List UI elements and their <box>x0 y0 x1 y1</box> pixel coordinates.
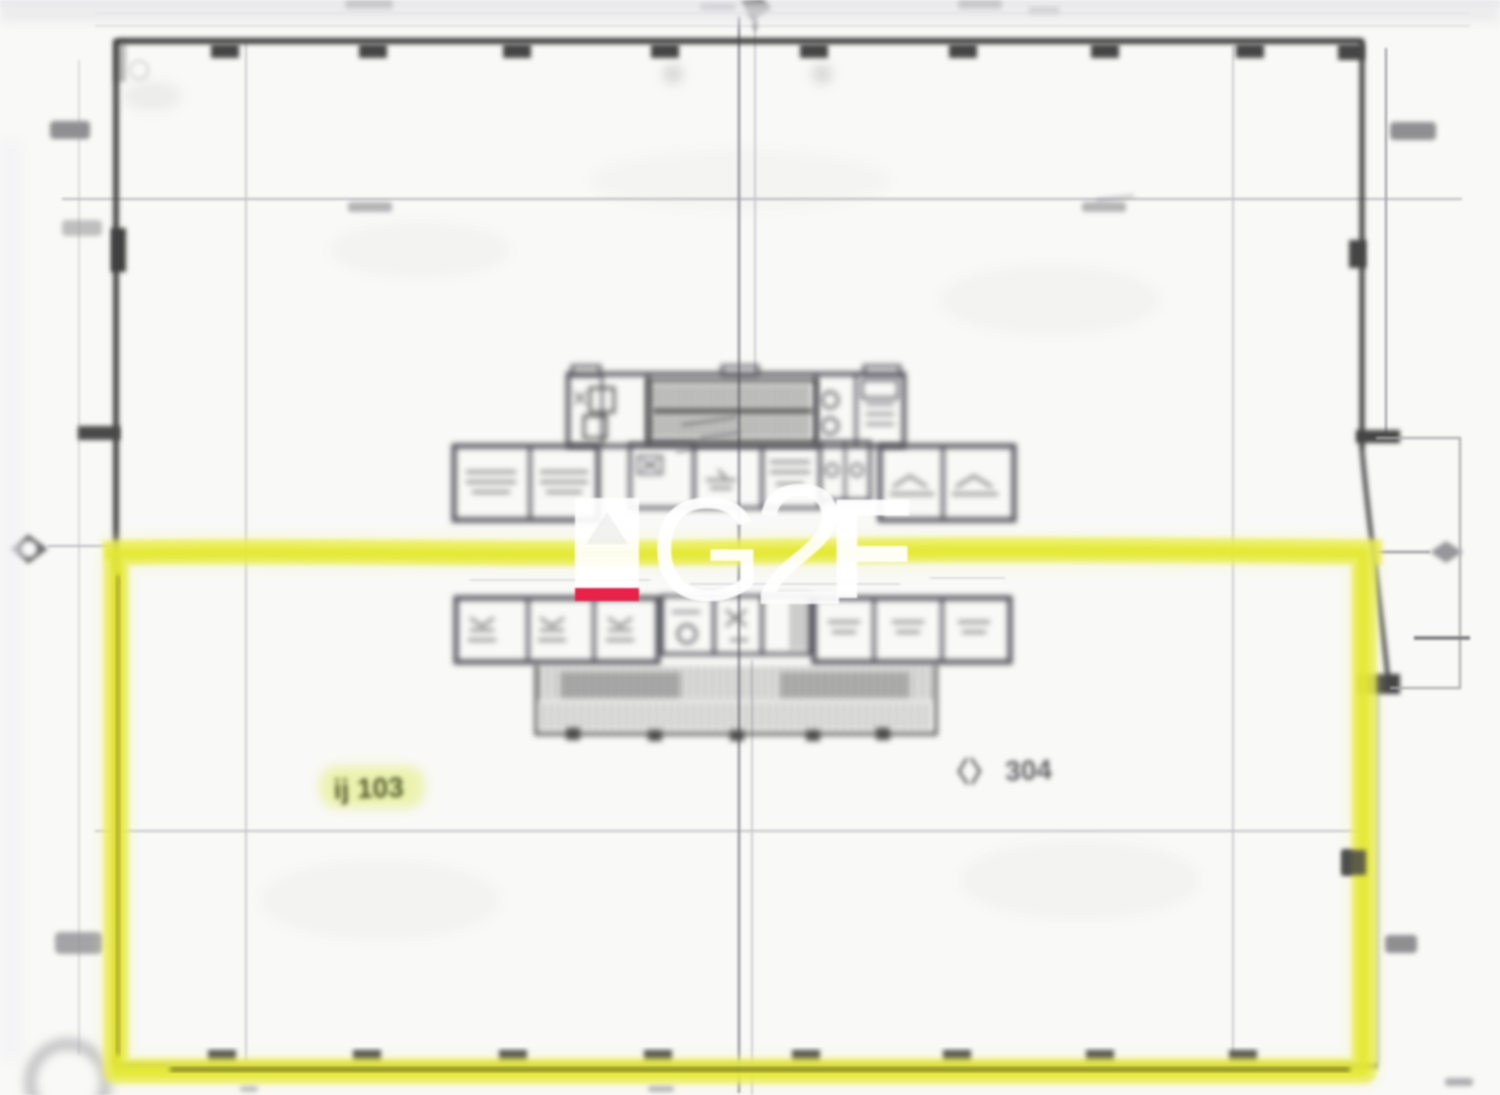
svg-text:〈〉 304: 〈〉 304 <box>941 754 1053 789</box>
svg-text:ij 103: ij 103 <box>333 772 404 805</box>
svg-text:F: F <box>827 470 914 629</box>
svg-text:G: G <box>650 468 764 632</box>
